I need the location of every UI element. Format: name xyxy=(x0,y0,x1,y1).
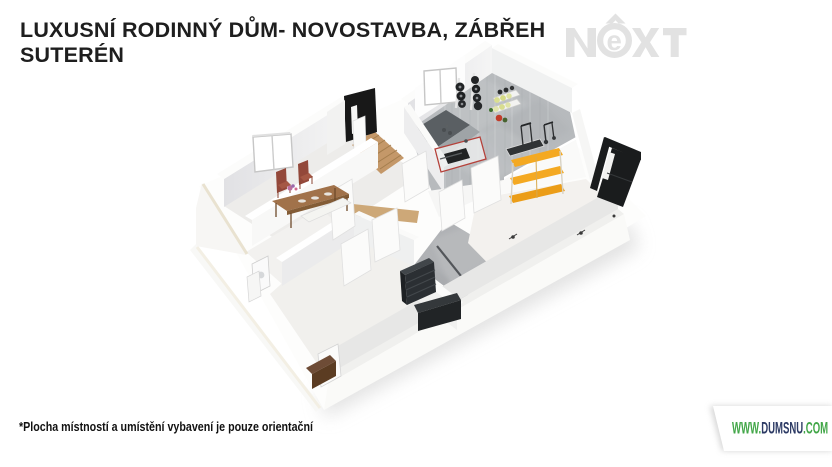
svg-text:WWW.DUMSNU.COM: WWW.DUMSNU.COM xyxy=(732,419,828,437)
